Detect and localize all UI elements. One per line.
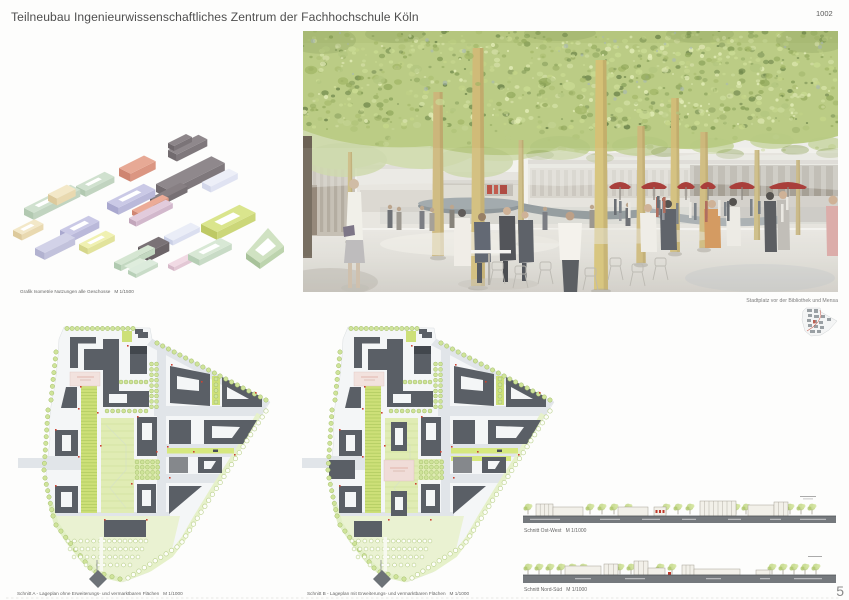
- svg-text:Stadtplatz vor der Bibliothek: Stadtplatz vor der Bibliothek und Mensa: [746, 298, 838, 304]
- svg-text:Schnitt A - Lageplan ohne Erwe: Schnitt A - Lageplan ohne Erweiterungs- …: [17, 591, 183, 596]
- svg-text:5: 5: [836, 583, 844, 599]
- svg-text:Schnitt Nord-Süd M 1/1000: Schnitt Nord-Süd M 1/1000: [524, 587, 587, 593]
- svg-text:Teilneubau Ingenieurwissenscha: Teilneubau Ingenieurwissenschaftliches Z…: [11, 10, 419, 24]
- svg-text:Grafik Isometrie Nutzungen all: Grafik Isometrie Nutzungen alle Geschoss…: [20, 289, 134, 294]
- svg-text:Schnitt B - Lageplan mit Erwei: Schnitt B - Lageplan mit Erweiterungs- u…: [307, 591, 469, 596]
- svg-text:1002: 1002: [816, 9, 833, 18]
- svg-text:Schnitt Ost-West M 1/1000: Schnitt Ost-West M 1/1000: [524, 528, 587, 534]
